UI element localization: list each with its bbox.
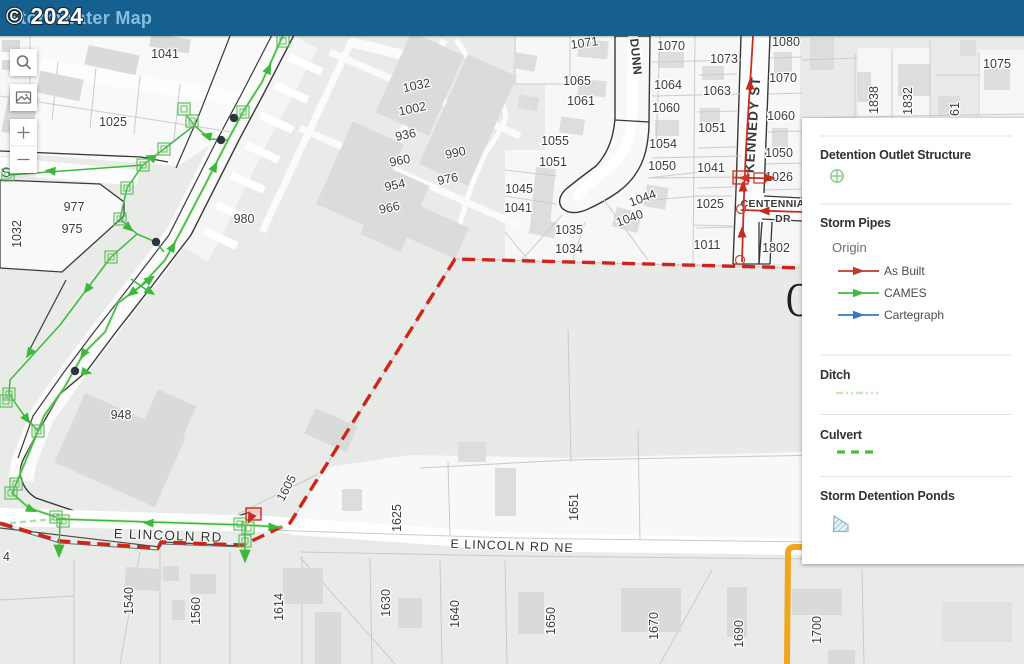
svg-text:1063: 1063 xyxy=(703,84,731,98)
svg-text:As Built: As Built xyxy=(884,264,925,278)
svg-text:1075: 1075 xyxy=(983,57,1011,71)
svg-text:1061: 1061 xyxy=(567,94,595,108)
svg-text:1045: 1045 xyxy=(505,182,533,196)
svg-text:1070: 1070 xyxy=(657,39,685,53)
svg-text:1832: 1832 xyxy=(901,87,915,115)
svg-text:1670: 1670 xyxy=(647,612,661,640)
svg-text:1060: 1060 xyxy=(652,101,680,115)
svg-text:1025: 1025 xyxy=(99,115,127,129)
svg-text:1025: 1025 xyxy=(696,197,724,211)
svg-text:1055: 1055 xyxy=(541,134,569,148)
svg-text:Detention Outlet Structure: Detention Outlet Structure xyxy=(820,148,971,162)
svg-text:4: 4 xyxy=(3,550,10,564)
svg-text:1540: 1540 xyxy=(122,587,136,615)
svg-text:1650: 1650 xyxy=(544,607,558,635)
svg-text:1054: 1054 xyxy=(649,137,677,151)
svg-text:1041: 1041 xyxy=(697,161,725,175)
svg-text:1064: 1064 xyxy=(654,78,682,92)
svg-text:DR: DR xyxy=(775,213,791,225)
svg-text:Storm Detention Ponds: Storm Detention Ponds xyxy=(820,489,955,503)
svg-text:1700: 1700 xyxy=(810,616,824,644)
svg-text:Ditch: Ditch xyxy=(820,368,850,382)
svg-text:CAMES: CAMES xyxy=(884,286,927,300)
svg-text:1011: 1011 xyxy=(694,238,721,252)
svg-text:1032: 1032 xyxy=(10,220,24,248)
svg-text:1614: 1614 xyxy=(272,593,286,621)
svg-text:1041: 1041 xyxy=(504,201,532,215)
svg-text:1802: 1802 xyxy=(762,241,790,255)
svg-text:1630: 1630 xyxy=(379,589,393,617)
svg-text:1060: 1060 xyxy=(767,109,795,123)
svg-text:1051: 1051 xyxy=(539,155,567,169)
svg-text:980: 980 xyxy=(234,212,255,226)
svg-text:Cartegraph: Cartegraph xyxy=(884,308,944,322)
svg-text:1640: 1640 xyxy=(448,600,462,628)
svg-text:975: 975 xyxy=(62,222,83,236)
svg-text:Origin: Origin xyxy=(832,240,867,255)
svg-text:1051: 1051 xyxy=(698,121,726,135)
svg-text:1625: 1625 xyxy=(390,504,404,532)
svg-text:948: 948 xyxy=(111,408,132,422)
svg-text:1050: 1050 xyxy=(765,146,793,160)
svg-text:1035: 1035 xyxy=(555,223,583,237)
svg-text:Storm Pipes: Storm Pipes xyxy=(820,216,891,230)
svg-text:Culvert: Culvert xyxy=(820,428,863,442)
svg-text:1050: 1050 xyxy=(648,159,676,173)
svg-text:CENTENNIAL: CENTENNIAL xyxy=(741,198,812,210)
svg-text:977: 977 xyxy=(64,200,85,214)
svg-text:1065: 1065 xyxy=(563,74,591,88)
svg-text:1690: 1690 xyxy=(732,620,746,648)
svg-text:© 2024: © 2024 xyxy=(6,3,84,29)
svg-text:1041: 1041 xyxy=(151,47,179,61)
svg-text:1838: 1838 xyxy=(867,86,881,114)
svg-text:1034: 1034 xyxy=(555,242,583,256)
svg-text:1070: 1070 xyxy=(769,71,797,85)
svg-text:61: 61 xyxy=(948,102,962,116)
svg-text:1073: 1073 xyxy=(710,52,738,66)
svg-text:1560: 1560 xyxy=(189,597,203,625)
svg-text:1651: 1651 xyxy=(567,493,581,521)
